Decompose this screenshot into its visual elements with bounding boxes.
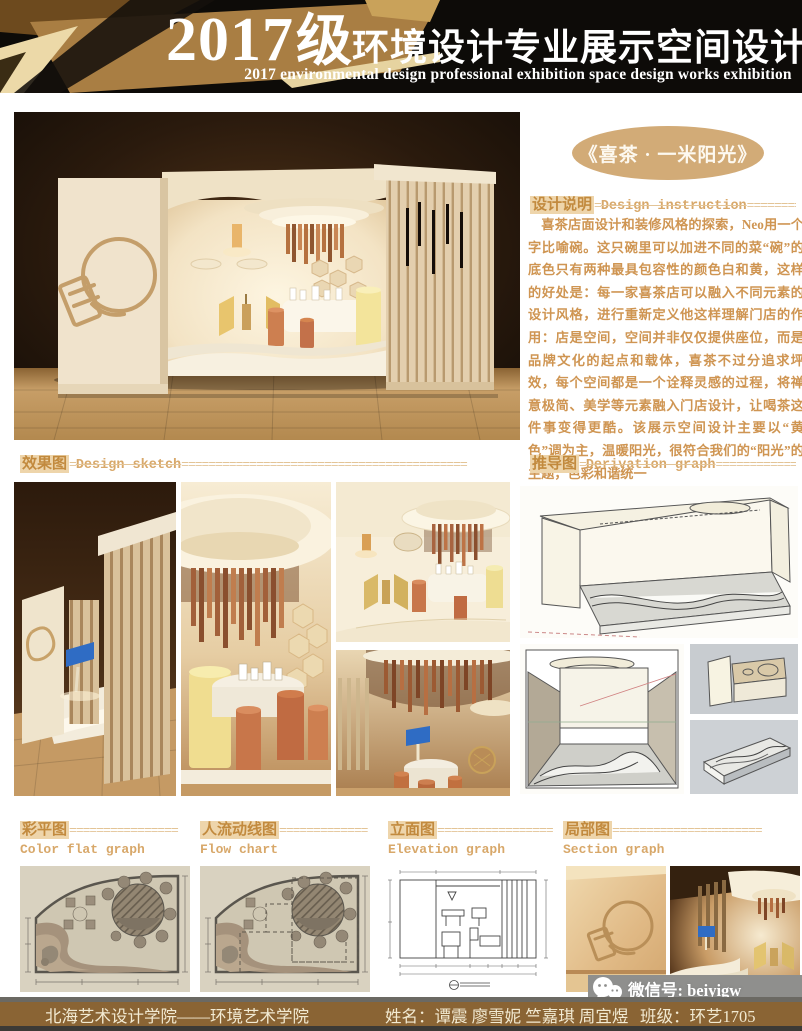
sketch-section-header: 效果图=Design sketch=======================… bbox=[20, 452, 520, 473]
title-chinese: 环境设计专业展示空间设计作品展 bbox=[352, 17, 802, 71]
derivation-sketch-detail bbox=[690, 644, 798, 714]
derivation-sketch-front bbox=[520, 644, 684, 794]
design-description: 喜茶店面设计和装修风格的探索，Neo用一个字比喻碗。这只碗里可以加进不同的菜“碗… bbox=[528, 214, 802, 485]
sketch-label-cn: 效果图 bbox=[20, 455, 69, 473]
derivation-label-cn: 推导图 bbox=[530, 455, 579, 473]
color-flat-header: 彩平图================ bbox=[20, 818, 192, 839]
derivation-sketch-platform bbox=[690, 720, 798, 794]
hero-render-image bbox=[14, 112, 520, 440]
title-english: 2017 environmental design professional e… bbox=[238, 66, 798, 84]
flow-chart-plan-image bbox=[200, 866, 370, 992]
footer-bottom-divider bbox=[0, 1026, 802, 1031]
sketch-label-en: Design sketch bbox=[76, 458, 181, 473]
footer-class: 班级：环艺1705 bbox=[640, 1003, 756, 1027]
flow-chart-header: 人流动线图============= bbox=[200, 818, 372, 839]
design-note-header: 设计说明=Design instruction============= bbox=[530, 193, 796, 214]
elevation-drawing-image bbox=[378, 866, 556, 992]
project-title: 《喜茶 · 一米阳光》 bbox=[579, 140, 758, 167]
poster-header: 2017级环境设计专业展示空间设计作品展 2017 environmental … bbox=[0, 0, 802, 93]
derivation-section-header: 推导图=Derivation graph================ bbox=[530, 452, 796, 473]
color-flat-plan-image bbox=[20, 866, 190, 992]
derivation-sketch-perspective bbox=[520, 486, 798, 638]
section-interior-image bbox=[670, 866, 800, 992]
render-exterior-corner-image bbox=[14, 482, 176, 796]
render-interior-chandelier-image bbox=[336, 650, 510, 796]
design-note-label-cn: 设计说明 bbox=[530, 196, 594, 214]
footer-school: 北海艺术设计学院——环境艺术学院 bbox=[45, 1003, 309, 1027]
flow-chart-header-en: Flow chart bbox=[200, 842, 278, 857]
elevation-header-en: Elevation graph bbox=[388, 842, 505, 857]
design-note-label-en: Design instruction bbox=[601, 199, 747, 214]
derivation-label-en: Derivation graph bbox=[586, 458, 716, 473]
render-interior-wide-image bbox=[336, 482, 510, 642]
footer-names: 姓名：谭震 廖雪妮 竺嘉琪 周宜煜 bbox=[385, 1003, 628, 1027]
project-title-badge: 《喜茶 · 一米阳光》 bbox=[572, 126, 764, 180]
section-logo-panel-image bbox=[566, 866, 666, 992]
section-graph-header: 局部图====================== bbox=[563, 818, 798, 839]
color-flat-header-en: Color flat graph bbox=[20, 842, 145, 857]
exhibition-poster: 2017级环境设计专业展示空间设计作品展 2017 environmental … bbox=[0, 0, 802, 1031]
elevation-header: 立面图================= bbox=[388, 818, 556, 839]
render-counter-closeup-image bbox=[181, 482, 331, 796]
footer-bar: 北海艺术设计学院——环境艺术学院 姓名：谭震 廖雪妮 竺嘉琪 周宜煜 班级：环艺… bbox=[0, 1002, 802, 1026]
section-graph-header-en: Section graph bbox=[563, 842, 664, 857]
